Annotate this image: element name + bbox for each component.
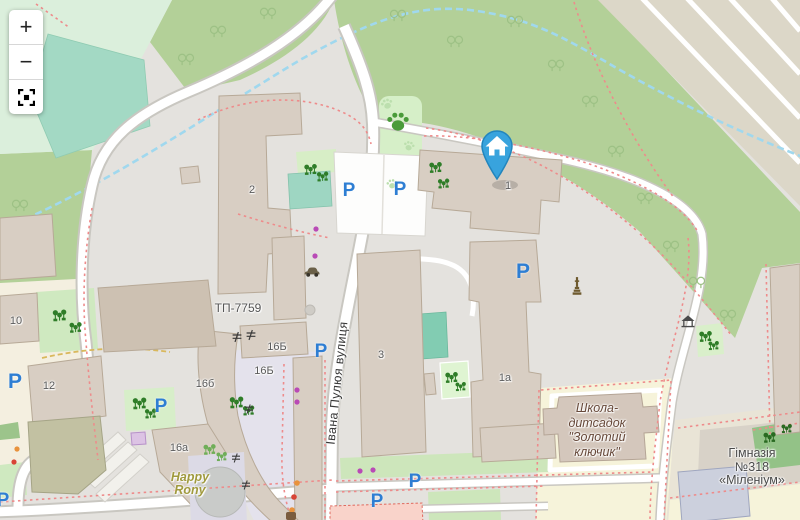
zoom-out-button[interactable]: −: [9, 45, 43, 80]
building-number: 16б: [196, 378, 215, 390]
zoom-in-button[interactable]: +: [9, 10, 43, 45]
building-number: 10: [10, 315, 22, 327]
substation-label: ТП-7759: [215, 301, 262, 315]
trees-cluster-icon: [69, 322, 84, 334]
home-marker-pin[interactable]: [476, 125, 518, 186]
tree-icon: [11, 199, 30, 213]
playground-icon: [455, 382, 468, 392]
gate-icon: [232, 332, 243, 343]
school-label-line: дитсадок: [568, 416, 625, 431]
tree-icon: [688, 276, 707, 290]
car-shop-icon: [304, 266, 321, 278]
tree-icon: [662, 240, 681, 254]
school-label-line: ключик": [568, 445, 625, 460]
trees-cluster-icon: [763, 432, 778, 444]
monument-icon: [572, 276, 583, 300]
trees-cluster-icon: [316, 172, 330, 183]
gymnasium-label-line: №318: [719, 460, 785, 474]
gate-icon: [246, 330, 257, 341]
dog-park-paw-icon: [386, 111, 410, 133]
tree-icon: [177, 53, 196, 67]
building-number: 16а: [170, 442, 188, 454]
parking-icon: P: [371, 491, 384, 513]
parking-icon: P: [394, 179, 407, 201]
parking-icon: P: [409, 471, 422, 493]
tree-icon: [636, 192, 655, 206]
playground-icon: [428, 162, 444, 174]
gymnasium-label: Гімназія №318 «Міленіум»: [719, 447, 785, 488]
building-number: 2: [249, 184, 255, 196]
playground-icon: [708, 341, 721, 351]
school-label: Школа- дитсадок "Золотий ключик": [568, 401, 625, 459]
tree-icon: [446, 35, 465, 49]
gate-icon: [241, 480, 251, 490]
gymnasium-label-line: «Міленіум»: [719, 474, 785, 488]
school-label-line: Школа-: [568, 401, 625, 416]
playground-icon: [437, 179, 451, 190]
trees-cluster-icon: [52, 310, 69, 323]
building-number: 16Б: [267, 341, 286, 353]
gate-icon: [244, 404, 254, 414]
tree-icon: [547, 59, 566, 73]
playground-icon: [216, 452, 229, 462]
gate-icon: [231, 453, 241, 463]
parking-icon: P: [155, 396, 168, 418]
map-zoom-control: + −: [9, 10, 43, 114]
tree-icon: [389, 9, 408, 23]
tree-icon: [209, 25, 228, 39]
tree-icon: [719, 309, 738, 323]
building-number: 3: [378, 349, 384, 361]
happy-rony-label: Happy Rony: [171, 471, 209, 497]
building-number: 16Б: [254, 365, 273, 377]
school-label-line: "Золотий: [568, 430, 625, 445]
fullscreen-button[interactable]: [9, 80, 43, 114]
gymnasium-label-line: Гімназія: [719, 447, 785, 461]
tree-icon: [581, 95, 600, 109]
parking-icon: P: [0, 490, 9, 512]
tree-icon: [607, 145, 626, 159]
map-viewport[interactable]: P P P P P P P P P 2 1 3 1а 10 12 16Б 16Б…: [0, 0, 800, 520]
parking-icon: P: [343, 180, 356, 202]
happy-rony-label-line: Rony: [171, 484, 209, 497]
trees-cluster-icon: [781, 424, 794, 434]
tree-icon: [506, 15, 525, 29]
fullscreen-icon: [18, 89, 35, 106]
map-canvas[interactable]: [0, 0, 800, 520]
building-number: 12: [43, 380, 55, 392]
parking-icon: P: [516, 260, 530, 284]
parking-icon: P: [315, 341, 328, 363]
building-number: 1а: [499, 372, 511, 384]
shelter-icon: [681, 315, 696, 328]
parking-icon: P: [8, 370, 22, 394]
tree-icon: [259, 7, 278, 21]
